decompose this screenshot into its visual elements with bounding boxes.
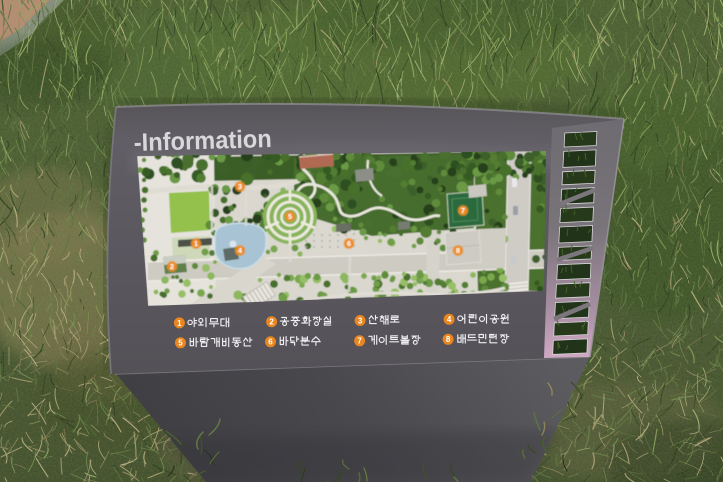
svg-text:7: 7 xyxy=(357,337,362,346)
svg-text:2: 2 xyxy=(269,318,274,327)
svg-text:5: 5 xyxy=(288,212,292,221)
svg-text:2: 2 xyxy=(170,262,174,271)
svg-text:5: 5 xyxy=(178,339,183,348)
svg-text:1: 1 xyxy=(194,239,198,248)
svg-text:4: 4 xyxy=(447,315,452,324)
svg-text:3: 3 xyxy=(238,182,242,191)
svg-text:7: 7 xyxy=(461,206,465,215)
svg-text:3: 3 xyxy=(358,316,363,325)
svg-text:6: 6 xyxy=(347,239,351,248)
svg-text:8: 8 xyxy=(446,335,451,344)
svg-text:1: 1 xyxy=(177,319,182,328)
svg-text:6: 6 xyxy=(268,338,273,347)
svg-text:-Information: -Information xyxy=(133,125,272,157)
svg-text:8: 8 xyxy=(456,246,460,255)
